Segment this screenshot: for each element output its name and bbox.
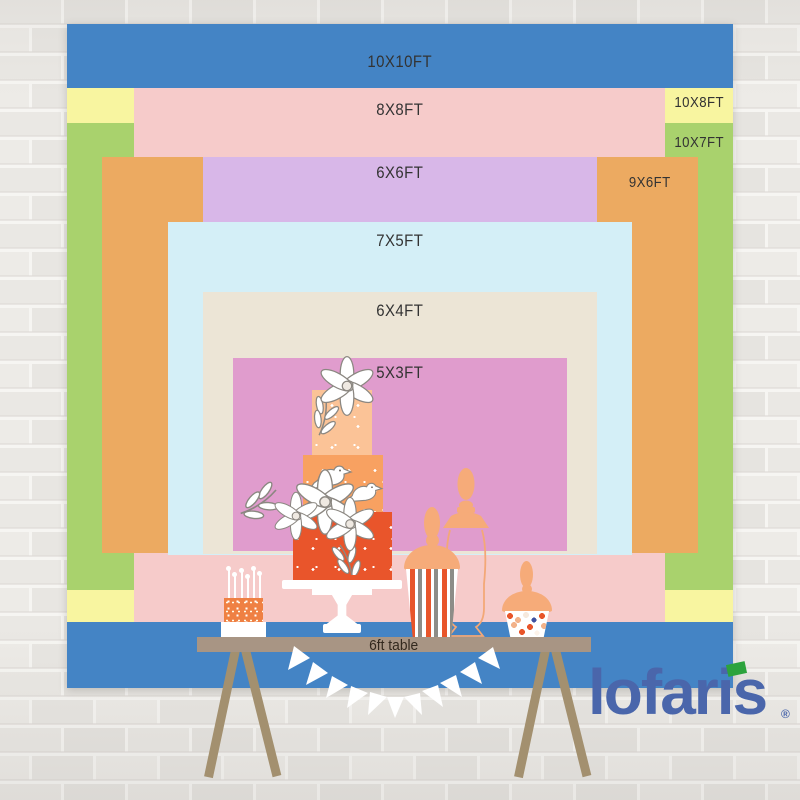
size-label-7x5ft: 7X5FT bbox=[67, 231, 733, 251]
size-label-10x10ft: 10X10FT bbox=[67, 52, 733, 72]
cake-pop-tip bbox=[251, 566, 256, 571]
cake-pop-tip bbox=[226, 566, 231, 571]
cake-pops-box bbox=[221, 622, 266, 638]
cake-pop-stick bbox=[234, 576, 236, 598]
registered-trademark-symbol: ® bbox=[781, 707, 790, 721]
cake-pop-stick bbox=[228, 570, 230, 598]
candy-jar-bowl bbox=[504, 611, 550, 638]
size-label-6x4ft: 6X4FT bbox=[67, 301, 733, 321]
cake-stand-plate bbox=[282, 580, 402, 589]
size-label-8x8ft: 8X8FT bbox=[67, 100, 733, 120]
cake-pop-stick bbox=[253, 570, 255, 598]
cake-stand-step bbox=[312, 589, 372, 595]
cake-stand-foot bbox=[323, 624, 361, 633]
size-label-10x7ft: 10X7FT bbox=[665, 134, 733, 152]
cake-pop-stick bbox=[241, 572, 243, 598]
cake-pop-stick bbox=[259, 575, 261, 598]
cake-pops-block bbox=[224, 598, 263, 622]
cake-pop-tip bbox=[257, 571, 262, 576]
cake-pop-tip bbox=[245, 574, 250, 579]
size-label-10x8ft: 10X8FT bbox=[665, 94, 733, 112]
cake-flowers-birds-illustration bbox=[240, 350, 410, 575]
cake-pop-tip bbox=[239, 568, 244, 573]
backdrop-size-chart-image: 10X10FT 8X8FT 6X6FT 7X5FT 6X4FT 5X3FT 10… bbox=[0, 0, 800, 800]
cake-pop-stick bbox=[247, 578, 249, 598]
size-label-9x6ft: 9X6FT bbox=[615, 174, 685, 192]
popcorn-jar-striped-body bbox=[406, 569, 458, 638]
pennant-bunting bbox=[280, 636, 510, 746]
brand-logo: lofaris ® bbox=[588, 660, 798, 730]
cake-pop-tip bbox=[232, 572, 237, 577]
